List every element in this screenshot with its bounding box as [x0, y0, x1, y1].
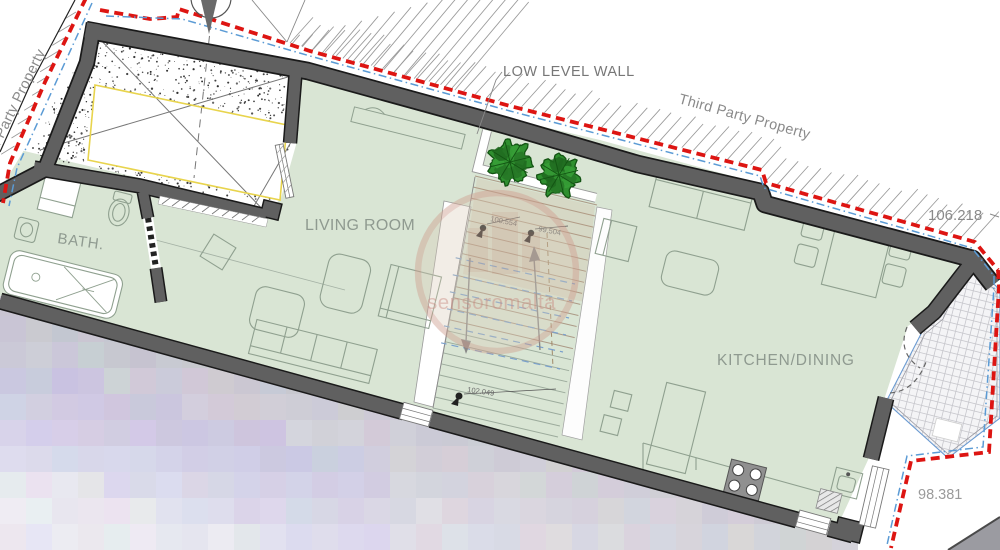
svg-text:sensoromalta: sensoromalta — [427, 291, 556, 314]
svg-text:LOW LEVEL WALL: LOW LEVEL WALL — [503, 64, 635, 80]
svg-text:98.381: 98.381 — [918, 487, 962, 503]
svg-text:106.218: 106.218 — [928, 207, 982, 224]
svg-text:LIVING ROOM: LIVING ROOM — [305, 217, 415, 234]
svg-text:KITCHEN/DINING: KITCHEN/DINING — [717, 352, 855, 369]
